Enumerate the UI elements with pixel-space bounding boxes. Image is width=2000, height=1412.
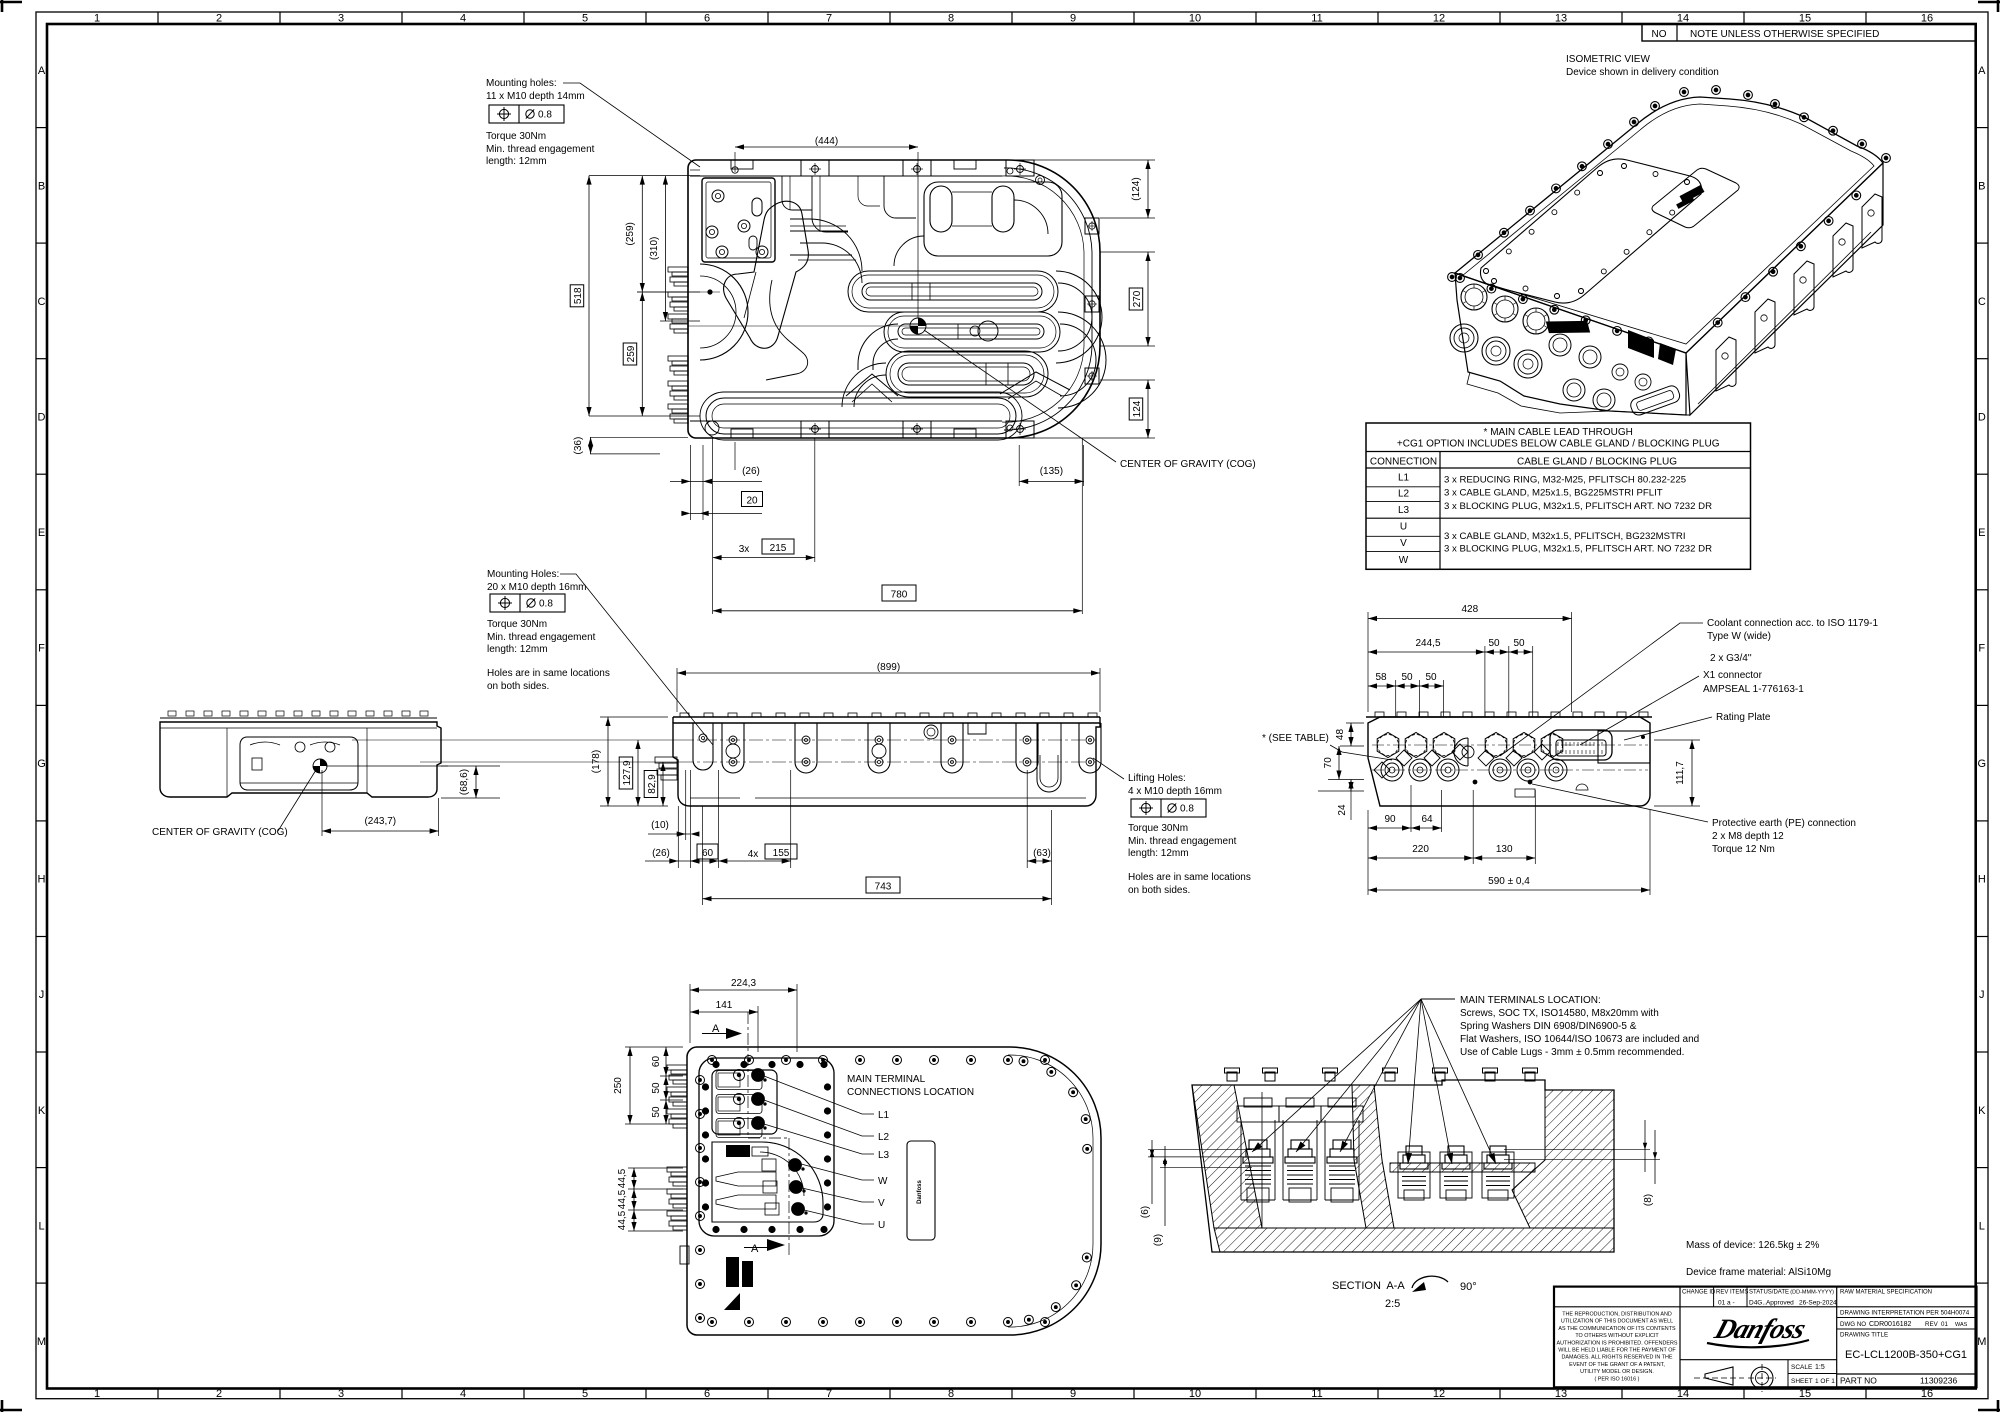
svg-text:CONNECTION: CONNECTION	[1370, 457, 1437, 468]
svg-text:(26): (26)	[652, 848, 670, 859]
svg-text:60: 60	[651, 1056, 662, 1068]
svg-text:SHEET: SHEET	[1791, 1378, 1813, 1385]
svg-text:U: U	[1400, 522, 1407, 533]
svg-text:THE REPRODUCTION, DISTRIBUTION: THE REPRODUCTION, DISTRIBUTION AND	[1562, 1312, 1672, 1318]
svg-text:(6): (6)	[1140, 1206, 1151, 1218]
svg-text:B: B	[1978, 180, 1985, 192]
svg-text:A: A	[751, 1243, 759, 1255]
svg-text:70: 70	[1323, 757, 1334, 769]
svg-text:50: 50	[651, 1106, 662, 1118]
svg-text:15: 15	[1799, 13, 1811, 25]
svg-text:82,9: 82,9	[647, 774, 658, 794]
svg-text:NO: NO	[1652, 29, 1667, 40]
svg-text:224,3: 224,3	[731, 978, 756, 989]
svg-text:Screws, SOC TX, ISO14580, M8x2: Screws, SOC TX, ISO14580, M8x20mm with	[1460, 1008, 1659, 1019]
svg-text:4x: 4x	[748, 849, 759, 860]
svg-text:10: 10	[1189, 13, 1201, 25]
svg-text:7: 7	[826, 1388, 832, 1400]
svg-text:Min. thread engagement: Min. thread engagement	[1128, 836, 1237, 847]
svg-text:428: 428	[1461, 604, 1478, 615]
svg-text:220: 220	[1412, 844, 1429, 855]
svg-text:7: 7	[826, 13, 832, 25]
svg-text:UTILITY MODEL OR DESIGN.: UTILITY MODEL OR DESIGN.	[1580, 1369, 1654, 1375]
svg-text:44,5: 44,5	[617, 1210, 628, 1230]
svg-text:3 x BLOCKING PLUG, M32x1.5, PF: 3 x BLOCKING PLUG, M32x1.5, PFLITSCH ART…	[1444, 501, 1712, 512]
svg-text:L2: L2	[1398, 489, 1410, 500]
svg-text:(63): (63)	[1033, 848, 1051, 859]
svg-text:M: M	[1977, 1336, 1986, 1348]
svg-text:1: 1	[94, 1388, 100, 1400]
svg-text:743: 743	[875, 882, 892, 893]
svg-text:90: 90	[1384, 814, 1396, 825]
svg-text:Mounting Holes:: Mounting Holes:	[487, 569, 559, 580]
svg-text:50: 50	[1401, 672, 1413, 683]
svg-text:155: 155	[773, 848, 790, 859]
svg-text:L1: L1	[878, 1110, 890, 1121]
svg-text:Mounting holes:: Mounting holes:	[486, 78, 557, 89]
svg-text:50: 50	[1513, 638, 1525, 649]
svg-text:D: D	[1978, 412, 1986, 424]
svg-text:15: 15	[1799, 1388, 1811, 1400]
svg-text:20 x M10 depth 16mm: 20 x M10 depth 16mm	[487, 582, 587, 593]
svg-text:length: 12mm: length: 12mm	[486, 156, 547, 167]
svg-text:16: 16	[1921, 1388, 1933, 1400]
svg-text:(124): (124)	[1131, 177, 1142, 200]
svg-text:12: 12	[1433, 1388, 1445, 1400]
svg-text:G: G	[1978, 758, 1987, 770]
svg-text:11: 11	[1311, 13, 1322, 25]
svg-text:A: A	[38, 65, 46, 77]
svg-text:(9): (9)	[1153, 1234, 1164, 1246]
svg-text:13: 13	[1555, 13, 1567, 25]
svg-text:(899): (899)	[877, 662, 900, 673]
svg-text:E: E	[1978, 527, 1985, 539]
svg-text:(135): (135)	[1040, 466, 1063, 477]
svg-text:6: 6	[704, 1388, 710, 1400]
svg-text:ISOMETRIC VIEW: ISOMETRIC VIEW	[1566, 54, 1650, 65]
svg-text:AMPSEAL 1-776163-1: AMPSEAL 1-776163-1	[1703, 684, 1804, 695]
svg-text:2:5: 2:5	[1385, 1298, 1400, 1310]
svg-text:CABLE GLAND / BLOCKING PLUG: CABLE GLAND / BLOCKING PLUG	[1517, 457, 1677, 468]
svg-text:(68,6): (68,6)	[459, 769, 470, 795]
svg-text:11 x M10 depth 14mm: 11 x M10 depth 14mm	[486, 91, 585, 102]
svg-text:REV: REV	[1925, 1321, 1939, 1328]
svg-text:NOTE UNLESS OTHERWISE SPECIFIE: NOTE UNLESS OTHERWISE SPECIFIED	[1690, 29, 1879, 40]
svg-text:Lifting Holes:: Lifting Holes:	[1128, 773, 1186, 784]
svg-text:PART NO: PART NO	[1840, 1376, 1877, 1386]
svg-text:5: 5	[582, 1388, 588, 1400]
svg-text:D: D	[38, 412, 46, 424]
svg-text:Device frame material: AlSi10M: Device frame material: AlSi10Mg	[1686, 1267, 1831, 1278]
svg-text:C: C	[38, 296, 46, 308]
svg-text:(DD-MMM-YYYY): (DD-MMM-YYYY)	[1790, 1290, 1834, 1296]
svg-text:(10): (10)	[651, 820, 669, 831]
svg-text:11309236: 11309236	[1920, 1376, 1957, 1386]
svg-text:on both sides.: on both sides.	[1128, 885, 1190, 896]
svg-text:Torque 12 Nm: Torque 12 Nm	[1712, 844, 1775, 855]
svg-text:Danfoss: Danfoss	[1710, 1314, 1810, 1345]
svg-text:Use of Cable Lugs - 3mm ± 0.5m: Use of Cable Lugs - 3mm ± 0.5mm recommen…	[1460, 1047, 1684, 1058]
svg-text:3 x BLOCKING PLUG, M32x1.5, PF: 3 x BLOCKING PLUG, M32x1.5, PFLITSCH ART…	[1444, 544, 1712, 555]
svg-text:X1 connector: X1 connector	[1703, 670, 1763, 681]
svg-text:STATUS/DATE: STATUS/DATE	[1749, 1290, 1789, 1296]
svg-text:L: L	[1979, 1220, 1985, 1232]
svg-text:L1: L1	[1398, 473, 1410, 484]
svg-text:(444): (444)	[815, 136, 838, 147]
svg-text:EVENT OF THE GRANT OF A PATENT: EVENT OF THE GRANT OF A PATENT,	[1569, 1362, 1665, 1368]
svg-text:CENTER OF GRAVITY (COG): CENTER OF GRAVITY (COG)	[152, 827, 288, 838]
svg-text:DRAWING INTERPRETATION PER 504: DRAWING INTERPRETATION PER 504H0074	[1840, 1310, 1970, 1317]
svg-text:518: 518	[573, 287, 584, 304]
svg-text:length: 12mm: length: 12mm	[1128, 848, 1189, 859]
svg-text:AS THE COMMUNICATION OF ITS CO: AS THE COMMUNICATION OF ITS CONTENTS	[1558, 1326, 1676, 1332]
svg-text:111,7: 111,7	[1675, 761, 1686, 785]
svg-text:A: A	[1978, 65, 1986, 77]
svg-text:20: 20	[746, 496, 758, 507]
svg-text:3 x CABLE GLAND, M32x1.5, PFLI: 3 x CABLE GLAND, M32x1.5, PFLITSCH, BG23…	[1444, 531, 1686, 542]
svg-text:CONNECTIONS LOCATION: CONNECTIONS LOCATION	[847, 1087, 974, 1098]
svg-text:6: 6	[704, 13, 710, 25]
svg-text:3: 3	[338, 1388, 344, 1400]
svg-text:3 x REDUCING RING, M32-M25, PF: 3 x REDUCING RING, M32-M25, PFLITSCH 80.…	[1444, 475, 1686, 486]
svg-text:11: 11	[1311, 1388, 1322, 1400]
svg-text:1:5: 1:5	[1815, 1364, 1825, 1371]
svg-text:WILL BE HELD LIABLE FOR THE PA: WILL BE HELD LIABLE FOR THE PAYMENT OF	[1558, 1348, 1676, 1354]
svg-text:E: E	[38, 527, 45, 539]
svg-text:2: 2	[216, 13, 222, 25]
svg-text:J: J	[1979, 989, 1985, 1001]
svg-text:V: V	[1400, 538, 1407, 549]
svg-text:Holes are in same locations: Holes are in same locations	[487, 668, 610, 679]
svg-text:(310): (310)	[649, 237, 660, 260]
svg-text:Flat Washers, ISO 10644/ISO 10: Flat Washers, ISO 10644/ISO 10673 are in…	[1460, 1034, 1699, 1045]
svg-text:(178): (178)	[591, 750, 602, 773]
svg-text:0.8: 0.8	[1180, 804, 1194, 815]
svg-text:W: W	[1399, 555, 1409, 566]
svg-text:V: V	[878, 1198, 885, 1209]
svg-text:Coolant connection acc. to ISO: Coolant connection acc. to ISO 1179-1	[1707, 618, 1878, 629]
svg-text:14: 14	[1677, 1388, 1689, 1400]
svg-text:* MAIN CABLE LEAD THROUGH: * MAIN CABLE LEAD THROUGH	[1484, 427, 1633, 438]
svg-text:K: K	[38, 1105, 46, 1117]
svg-text:EC-LCL1200B-350+CG1: EC-LCL1200B-350+CG1	[1845, 1349, 1967, 1361]
svg-text:44,5: 44,5	[617, 1168, 628, 1188]
svg-text:215: 215	[770, 543, 787, 554]
svg-text:01 a -: 01 a -	[1718, 1300, 1735, 1307]
svg-text:AUTHORIZATION IS PROHIBITED. O: AUTHORIZATION IS PROHIBITED. OFFENDERS	[1557, 1340, 1678, 1346]
svg-text:50: 50	[1488, 638, 1500, 649]
svg-text:270: 270	[1132, 290, 1143, 307]
svg-text:26-Sep-2024: 26-Sep-2024	[1799, 1300, 1837, 1307]
svg-text:12: 12	[1433, 13, 1445, 25]
svg-text:M: M	[37, 1336, 46, 1348]
svg-text:( PER ISO 16016 ): ( PER ISO 16016 )	[1595, 1376, 1640, 1382]
svg-text:TO OTHERS WITHOUT EXPLICIT: TO OTHERS WITHOUT EXPLICIT	[1575, 1333, 1659, 1339]
svg-text:250: 250	[613, 1077, 624, 1094]
svg-text:H: H	[1978, 874, 1986, 886]
svg-text:D4G..Approved: D4G..Approved	[1749, 1300, 1794, 1307]
svg-text:SECTION A-A: SECTION A-A	[1332, 1280, 1405, 1292]
svg-text:130: 130	[1496, 844, 1513, 855]
svg-text:124: 124	[1132, 400, 1143, 417]
svg-text:UTILIZATION OF THIS DOCUMENT A: UTILIZATION OF THIS DOCUMENT AS WELL	[1561, 1319, 1673, 1325]
svg-text:F: F	[1978, 643, 1985, 655]
svg-text:60: 60	[702, 848, 714, 859]
svg-text:F: F	[38, 643, 45, 655]
svg-text:Rating Plate: Rating Plate	[1716, 712, 1771, 723]
svg-text:MAIN TERMINAL: MAIN TERMINAL	[847, 1074, 926, 1085]
svg-text:Type W (wide): Type W (wide)	[1707, 631, 1771, 642]
svg-text:Torque 30Nm: Torque 30Nm	[486, 131, 546, 142]
svg-text:CHANGE ID: CHANGE ID	[1682, 1290, 1716, 1296]
svg-text:WAS: WAS	[1955, 1322, 1968, 1328]
svg-text:5: 5	[582, 13, 588, 25]
svg-text:244,5: 244,5	[1415, 638, 1440, 649]
svg-text:58: 58	[1375, 672, 1387, 683]
svg-text:+CG1 OPTION INCLUDES BELOW CAB: +CG1 OPTION INCLUDES BELOW CABLE GLAND /…	[1397, 439, 1720, 450]
svg-text:Holes are in same locations: Holes are in same locations	[1128, 872, 1251, 883]
svg-text:Mass of device: 126.5kg ± 2%: Mass of device: 126.5kg ± 2%	[1686, 1240, 1819, 1251]
svg-text:Torque 30Nm: Torque 30Nm	[1128, 823, 1188, 834]
svg-text:64: 64	[1421, 814, 1433, 825]
svg-text:K: K	[1978, 1105, 1986, 1117]
svg-text:(243,7): (243,7)	[364, 816, 396, 827]
svg-text:(26): (26)	[742, 466, 760, 477]
svg-text:590 ± 0,4: 590 ± 0,4	[1488, 876, 1530, 887]
svg-text:2 x M8 depth 12: 2 x M8 depth 12	[1712, 831, 1784, 842]
svg-text:length: 12mm: length: 12mm	[487, 644, 548, 655]
svg-text:SCALE: SCALE	[1791, 1364, 1813, 1371]
svg-text:50: 50	[651, 1082, 662, 1094]
svg-text:141: 141	[716, 1000, 733, 1011]
svg-text:3: 3	[338, 13, 344, 25]
svg-text:2 x G3/4'': 2 x G3/4''	[1710, 653, 1752, 664]
svg-text:90°: 90°	[1460, 1281, 1477, 1293]
svg-text:8: 8	[948, 13, 954, 25]
svg-text:9: 9	[1070, 13, 1076, 25]
svg-text:Device shown in delivery condi: Device shown in delivery condition	[1566, 67, 1719, 78]
svg-text:13: 13	[1555, 1388, 1567, 1400]
svg-text:0.8: 0.8	[539, 599, 553, 610]
svg-text:48: 48	[1335, 729, 1346, 741]
svg-text:B: B	[38, 180, 45, 192]
svg-text:3 x CABLE GLAND, M25x1.5, BG22: 3 x CABLE GLAND, M25x1.5, BG225MSTRI PFL…	[1444, 488, 1663, 499]
svg-text:10: 10	[1189, 1388, 1201, 1400]
svg-text:1: 1	[94, 13, 100, 25]
svg-text:50: 50	[1425, 672, 1437, 683]
svg-text:U: U	[878, 1220, 885, 1231]
svg-text:G: G	[37, 758, 46, 770]
svg-text:(36): (36)	[573, 437, 584, 455]
svg-text:(259): (259)	[625, 222, 636, 245]
svg-text:Danfoss: Danfoss	[917, 1180, 923, 1204]
svg-text:259: 259	[626, 345, 637, 362]
svg-text:4 x M10 depth 16mm: 4 x M10 depth 16mm	[1128, 786, 1222, 797]
svg-text:24: 24	[1337, 804, 1348, 816]
svg-text:2: 2	[216, 1388, 222, 1400]
svg-text:Torque 30Nm: Torque 30Nm	[487, 619, 547, 630]
svg-text:Spring Washers DIN 6908/DIN690: Spring Washers DIN 6908/DIN6900-5 &	[1460, 1021, 1637, 1032]
svg-text:DAMAGES. ALL RIGHTS RESERVED I: DAMAGES. ALL RIGHTS RESERVED IN THE	[1561, 1355, 1672, 1361]
svg-text:14: 14	[1677, 13, 1689, 25]
svg-text:H: H	[38, 874, 46, 886]
svg-text:3x: 3x	[739, 544, 750, 555]
svg-text:127,9: 127,9	[622, 760, 633, 785]
svg-text:8: 8	[948, 1388, 954, 1400]
svg-text:Min. thread engagement: Min. thread engagement	[487, 632, 596, 643]
svg-text:CENTER OF GRAVITY (COG): CENTER OF GRAVITY (COG)	[1120, 459, 1256, 470]
svg-text:CDR0016182: CDR0016182	[1869, 1321, 1912, 1328]
svg-text:780: 780	[891, 590, 908, 601]
svg-text:16: 16	[1921, 13, 1933, 25]
svg-text:J: J	[39, 989, 45, 1001]
svg-text:(8): (8)	[1643, 1194, 1654, 1206]
svg-text:L3: L3	[878, 1150, 890, 1161]
svg-text:* (SEE TABLE): * (SEE TABLE)	[1262, 733, 1329, 744]
svg-text:RAW MATERIAL SPECIFICATION: RAW MATERIAL SPECIFICATION	[1840, 1290, 1932, 1296]
svg-text:4: 4	[460, 13, 466, 25]
svg-text:C: C	[1978, 296, 1986, 308]
svg-text:9: 9	[1070, 1388, 1076, 1400]
svg-text:Min. thread engagement: Min. thread engagement	[486, 144, 595, 155]
svg-text:L: L	[38, 1220, 44, 1232]
svg-text:DRAWING TITLE: DRAWING TITLE	[1840, 1332, 1888, 1339]
svg-text:MAIN TERMINALS LOCATION:: MAIN TERMINALS LOCATION:	[1460, 995, 1601, 1006]
svg-text:on both sides.: on both sides.	[487, 681, 549, 692]
svg-text:Protective earth (PE) connecti: Protective earth (PE) connection	[1712, 818, 1856, 829]
svg-text:REV ITEMS: REV ITEMS	[1716, 1290, 1748, 1296]
svg-text:W: W	[878, 1176, 888, 1187]
svg-text:44,5: 44,5	[617, 1189, 628, 1209]
svg-text:1 OF 1: 1 OF 1	[1815, 1378, 1835, 1385]
svg-text:L2: L2	[878, 1132, 890, 1143]
svg-text:4: 4	[460, 1388, 466, 1400]
svg-text:01: 01	[1941, 1321, 1948, 1328]
svg-text:DWG NO: DWG NO	[1840, 1321, 1866, 1328]
svg-text:0.8: 0.8	[538, 110, 552, 121]
svg-text:L3: L3	[1398, 505, 1410, 516]
